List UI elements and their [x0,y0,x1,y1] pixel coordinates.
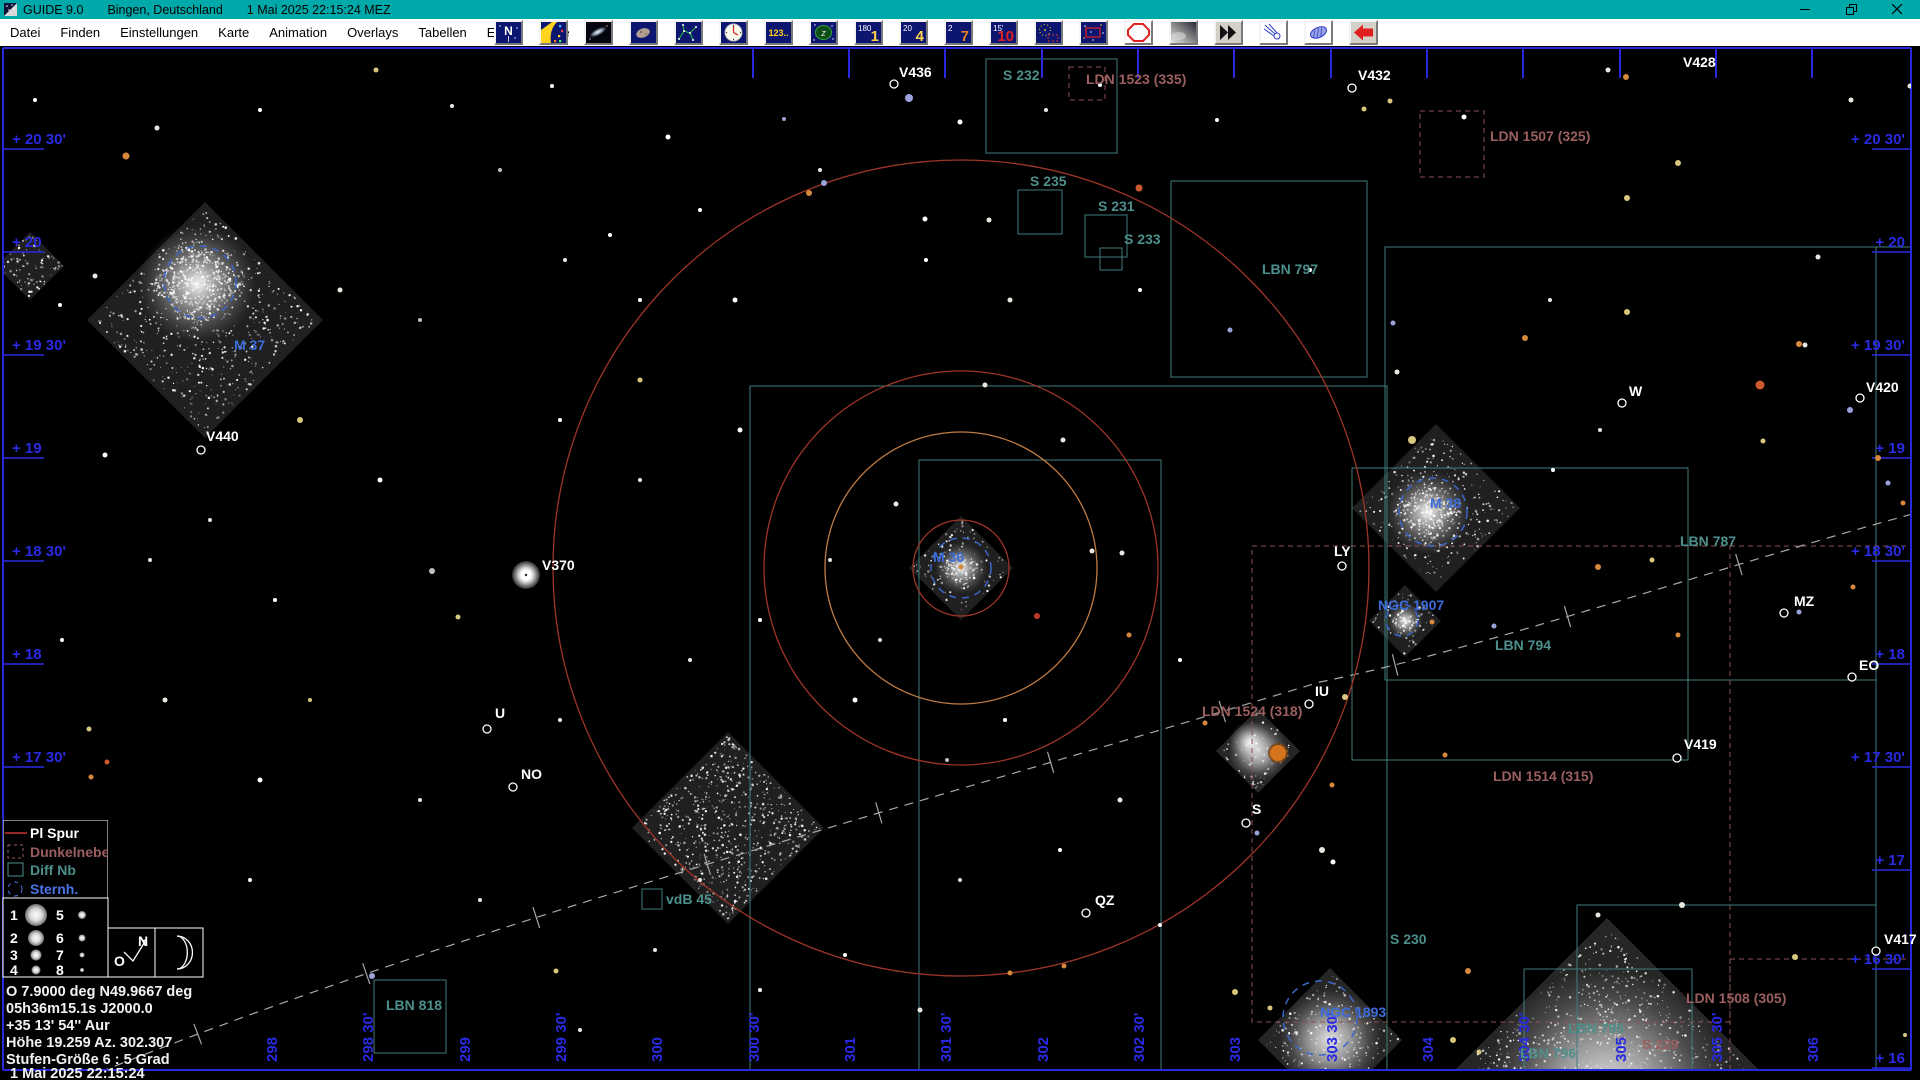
svg-text:3: 3 [10,947,18,963]
dso-label[interactable]: LDN 1508 (305) [1686,990,1786,1006]
compass-rose: ON [108,928,203,977]
az-label: 305 [1613,1037,1630,1062]
variable-star-label[interactable]: V428 [1683,54,1716,70]
variable-star-marker[interactable] [1780,609,1788,617]
variable-star-label[interactable]: IU [1315,683,1329,699]
variable-star-label[interactable]: V436 [899,64,932,80]
dso-label[interactable]: S 230 [1390,931,1427,947]
variable-star-label[interactable]: S [1252,801,1261,817]
status-line: Höhe 19.259 Az. 302.307 [6,1035,172,1051]
dso-label[interactable]: M 38 [1430,495,1461,511]
menu-item-karte[interactable]: Karte [208,19,259,46]
status-line: 1 Mai 2025 22:15:24 [10,1066,145,1080]
fast-forward-icon[interactable] [1214,20,1243,45]
dso-label[interactable]: LBN 795 [1568,1020,1624,1036]
bright-orange-star[interactable] [1270,745,1286,761]
az-label: 304 [1420,1036,1437,1062]
alt-label: + 17 [1875,852,1905,869]
az-label: 300 30' [746,1013,763,1062]
legend-entry: Pl Spur [30,825,80,841]
menu-item-overlays[interactable]: Overlays [337,19,408,46]
variable-star-label[interactable]: V370 [542,557,575,573]
variable-star-marker[interactable] [1338,562,1346,570]
variable-star-marker[interactable] [1305,700,1313,708]
alt-label: + 18 [12,646,42,663]
constellation-lines-icon[interactable] [674,20,703,45]
magnitude-scale: 12345678 [3,898,108,978]
dso-label[interactable]: S 231 [1098,198,1135,214]
variable-star-label[interactable]: U [495,705,505,721]
alt-label: + 17 30' [12,749,66,766]
compass-east-label: O [114,953,125,969]
svg-text:7: 7 [56,947,64,963]
day-night-icon[interactable] [539,20,568,45]
svg-text:z: z [820,28,826,38]
variable-star-label[interactable]: EO [1859,657,1879,673]
dso-label[interactable]: S 235 [1030,173,1067,189]
svg-text:6: 6 [56,930,64,946]
starfield-frame-icon[interactable] [1079,20,1108,45]
zenith-z-icon[interactable]: z [809,20,838,45]
az-label: 299 [457,1037,474,1062]
galaxy-photo-icon[interactable] [584,20,613,45]
dso-label[interactable]: M 36 [933,549,964,565]
dso-label[interactable]: LBN 787 [1680,533,1736,549]
variable-star-label[interactable]: W [1629,383,1643,399]
az-label: 303 [1227,1037,1244,1062]
dso-label[interactable]: LDN 1514 (315) [1493,768,1593,784]
variable-star-marker[interactable] [1242,819,1250,827]
restore-button[interactable] [1828,0,1874,19]
alt-label: + 19 30' [12,337,66,354]
az-label: 302 30' [1131,1013,1148,1062]
alt-label: + 18 [1875,646,1905,663]
status-line: O 7.9000 deg N49.9667 deg [6,984,192,1000]
variable-star-marker[interactable] [1618,399,1626,407]
dso-label[interactable]: LDN 1524 (318) [1202,703,1302,719]
dso-label[interactable]: M 37 [234,337,265,353]
alt-label: + 19 [1875,440,1905,457]
dso-label[interactable]: S 233 [1124,231,1161,247]
variable-star-label[interactable]: V432 [1358,67,1391,83]
alt-label: + 16 [1875,1050,1905,1067]
menu-item-animation[interactable]: Animation [259,19,337,46]
ellipse-sketch-icon[interactable] [1304,20,1333,45]
svg-text:5: 5 [56,907,64,923]
comet-sketch-icon[interactable] [1259,20,1288,45]
az-label: 298 [264,1037,281,1062]
dso-label[interactable]: S 232 [1003,67,1040,83]
dotted-circle-frame-icon[interactable] [1034,20,1063,45]
alt-label: + 19 30' [1851,337,1905,354]
alt-label: + 18 30' [1851,543,1905,560]
compass-north-icon[interactable]: N [494,20,523,45]
variable-star-label[interactable]: V440 [206,428,239,444]
zoom-level-4-icon[interactable]: 204 [899,20,928,45]
az-label: 300 [649,1037,666,1062]
nebula-photo-icon[interactable] [1169,20,1198,45]
app-icon [4,3,17,16]
variable-star-label[interactable]: QZ [1095,892,1115,908]
svg-text:N: N [504,24,513,38]
app-title: GUIDE 9.0 [23,3,83,17]
variable-star-label[interactable]: MZ [1794,593,1815,609]
variable-star-marker[interactable] [1872,947,1880,955]
sky-chart[interactable]: + 20 30'+ 20+ 19 30'+ 19+ 18 30'+ 18+ 17… [0,0,1920,1080]
svg-text:4: 4 [916,28,925,43]
clock-icon[interactable] [719,20,748,45]
az-label: 299 30' [553,1013,570,1062]
dso-label[interactable]: LDN 1523 (335) [1086,71,1186,87]
dso-label[interactable]: LBN 796 [1520,1045,1576,1061]
zoom-level-1-icon[interactable]: 1801 [854,20,883,45]
legend-entry: Diff Nb [30,862,76,878]
svg-text:2: 2 [948,24,953,33]
alt-label: + 19 [12,440,42,457]
dso-label[interactable]: LDN 1507 (325) [1490,128,1590,144]
variable-star-marker[interactable] [483,725,491,733]
title-location: Bingen, Deutschland [107,3,222,17]
dso-label[interactable]: vdB 45 [666,891,712,907]
variable-star-marker[interactable] [1856,394,1864,402]
svg-text:1: 1 [10,907,18,923]
legend: Pl SpurDunkelnebelDiff NbSternh. [3,820,113,898]
numbers-123-icon[interactable]: 123.. [764,20,793,45]
variable-star-marker[interactable] [1673,754,1681,762]
minimize-button[interactable] [1782,0,1828,19]
menu-item-einstellungen[interactable]: Einstellungen [110,19,208,46]
toolbar: N123..z18012042715'10 [494,20,1394,46]
svg-text:2: 2 [10,930,18,946]
variable-star-marker[interactable] [1348,84,1356,92]
title-datetime: 1 Mai 2025 22:15:24 MEZ [247,3,391,17]
dso-label[interactable]: NGC 1893 [1320,1004,1386,1020]
variable-star-marker[interactable] [890,80,898,88]
az-label: 301 30' [938,1013,955,1062]
menu-item-tabellen[interactable]: Tabellen [408,19,476,46]
svg-text:8: 8 [56,962,64,978]
menu-item-finden[interactable]: Finden [50,19,110,46]
stop-icon[interactable] [1124,20,1153,45]
variable-star-label[interactable]: V419 [1684,736,1717,752]
title-bar: GUIDE 9.0 Bingen, Deutschland 1 Mai 2025… [0,0,1920,19]
alt-label: + 20 30' [12,131,66,148]
dso-label[interactable]: NGC 1907 [1378,597,1444,613]
zoom-level-7-icon[interactable]: 27 [944,20,973,45]
status-line: 05h36m15.1s J2000.0 [6,1001,153,1017]
menu-item-datei[interactable]: Datei [0,19,50,46]
variable-star-marker[interactable] [509,783,517,791]
svg-text:4: 4 [10,962,18,978]
svg-text:20: 20 [903,24,912,33]
svg-text:123..: 123.. [768,28,788,38]
asteroid-icon[interactable] [629,20,658,45]
variable-star-label[interactable]: V417 [1884,931,1917,947]
variable-star-marker[interactable] [1848,673,1856,681]
alt-label: + 20 [1875,234,1905,251]
zoom-level-10-icon[interactable]: 15'10 [989,20,1018,45]
svg-text:1: 1 [871,28,879,43]
az-label: 301 [842,1037,859,1062]
alt-label: + 20 30' [1851,131,1905,148]
alt-label: + 18 30' [12,543,66,560]
legend-entry: Sternh. [30,881,78,897]
back-arrow-icon[interactable] [1349,20,1378,45]
az-label: 298 30' [360,1013,377,1062]
alt-label: + 20 [12,234,42,251]
svg-text:10: 10 [997,28,1014,43]
dso-label[interactable]: LBN 794 [1495,637,1551,653]
variable-star-marker[interactable] [197,446,205,454]
variable-star-label[interactable]: V420 [1866,379,1899,395]
dso-label[interactable]: LBN 818 [386,997,442,1013]
variable-star-label[interactable]: LY [1334,543,1351,559]
alt-label: + 17 30' [1851,749,1905,766]
az-label: 306 [1805,1037,1822,1062]
az-label: 302 [1035,1037,1052,1062]
status-line: +35 13' 54'' Aur [6,1018,110,1034]
variable-star-marker[interactable] [1082,909,1090,917]
close-button[interactable] [1874,0,1920,19]
svg-text:7: 7 [961,28,969,43]
legend-entry: Dunkelnebel [30,844,113,860]
dso-label[interactable]: S 229 [1642,1036,1679,1052]
dso-label[interactable]: LBN 797 [1262,261,1318,277]
variable-star-label[interactable]: NO [521,766,542,782]
az-label: 305 30' [1709,1013,1726,1062]
